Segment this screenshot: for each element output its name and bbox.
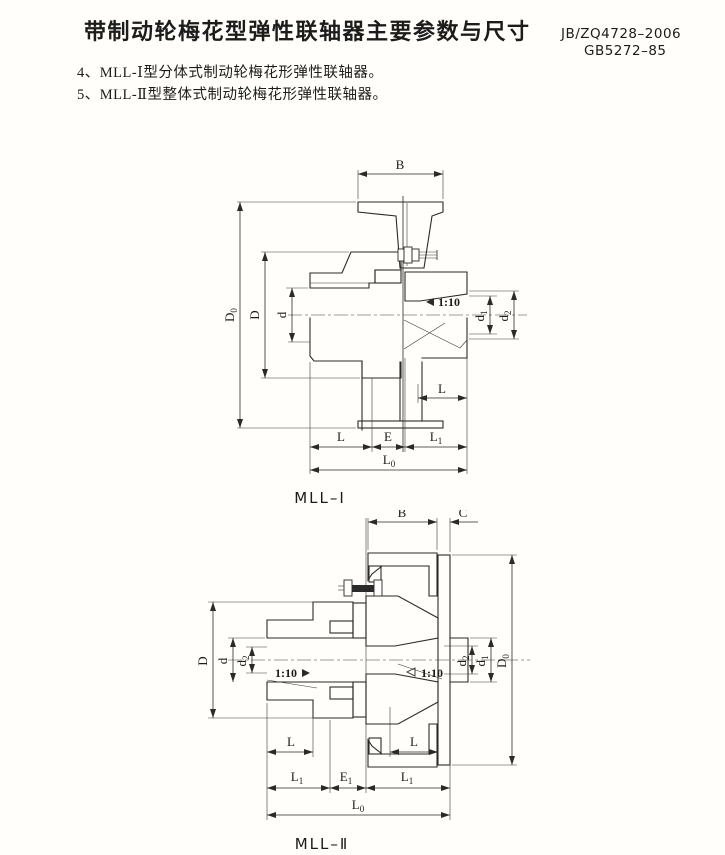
fig2-label-L0: L0 (352, 797, 365, 814)
fig2-label-d2-right: d2 (454, 656, 471, 667)
fig2-dim-B: B (368, 510, 437, 550)
note-line-5: 5、MLL-Ⅱ型整体式制动轮梅花形弹性联轴器。 (77, 83, 388, 104)
fig1-bolt (398, 247, 437, 263)
fig1-label-L: L (337, 429, 345, 444)
fig2-label-L1-left: L1 (291, 769, 303, 786)
fig2-dim-L-right: L (390, 707, 438, 757)
fig1-label-E: E (384, 429, 392, 444)
figure-mll-1-drawing: B D0 D d d1 d2 (180, 158, 540, 510)
fig2-label-L-left: L (287, 734, 295, 749)
fig1-label-D: D (247, 310, 262, 319)
fig1-label-d: d (274, 311, 289, 318)
fig1-taper-note: 1:10 (426, 295, 460, 309)
figure-mll-2-drawing: B C D0 D d d2 (185, 510, 540, 855)
fig1-dim-L0: L0 (310, 452, 467, 470)
fig1-dim-B: B (358, 158, 443, 199)
fig1-label-L1: L1 (430, 429, 442, 446)
fig2-taper-label-right: 1:10 (421, 666, 443, 680)
fig2-label-D0: D0 (494, 654, 511, 668)
fig2-label-D: D (195, 656, 210, 665)
fig1-taper-label: 1:10 (438, 295, 460, 309)
fig2-label-d2-left: d2 (234, 656, 251, 667)
fig2-dim-C: C (450, 510, 478, 552)
fig2-dim-L0: L0 (267, 797, 450, 815)
fig1-label-d1: d1 (472, 311, 489, 322)
fig2-label-E1: E1 (340, 769, 352, 786)
standard-number-2: GB5272–85 (584, 43, 667, 59)
fig2-taper-label-left: 1:10 (275, 666, 297, 680)
fig2-taper-note-right: 1:10 (407, 666, 443, 680)
fig2-bolt (338, 580, 382, 596)
fig1-label-L-right: L (438, 381, 446, 396)
fig1-label-d2: d2 (496, 311, 513, 322)
fig2-caption: MLL–Ⅱ (295, 835, 350, 853)
fig1-caption: MLL–Ⅰ (294, 489, 346, 507)
fig2-dim-d2-right: d2 (444, 646, 478, 674)
fig2-label-L1-right: L1 (401, 769, 413, 786)
page-title: 带制动轮梅花型弹性联轴器主要参数与尺寸 (84, 14, 531, 46)
fig2-taper-note-left: 1:10 (275, 666, 310, 680)
fig2-label-C: C (459, 510, 468, 520)
fig2-label-d1: d1 (473, 656, 490, 667)
note-line-4: 4、MLL-Ⅰ型分体式制动轮梅花形弹性联轴器。 (77, 61, 383, 82)
standard-number-1: JB/ZQ4728–2006 (561, 26, 681, 42)
fig1-label-D0: D0 (222, 308, 239, 322)
fig2-dim-L-left: L (267, 703, 313, 757)
fig1-label-B: B (396, 158, 405, 172)
fig2-label-L-right: L (410, 734, 418, 749)
fig2-label-B: B (398, 510, 407, 520)
fig1-label-L0: L0 (383, 452, 396, 469)
fig1-dim-L-right: L (418, 381, 467, 403)
fig2-label-d: d (215, 657, 230, 664)
document-page: 带制动轮梅花型弹性联轴器主要参数与尺寸 JB/ZQ4728–2006 GB527… (0, 0, 725, 855)
fig1-lower-outline (288, 318, 467, 430)
